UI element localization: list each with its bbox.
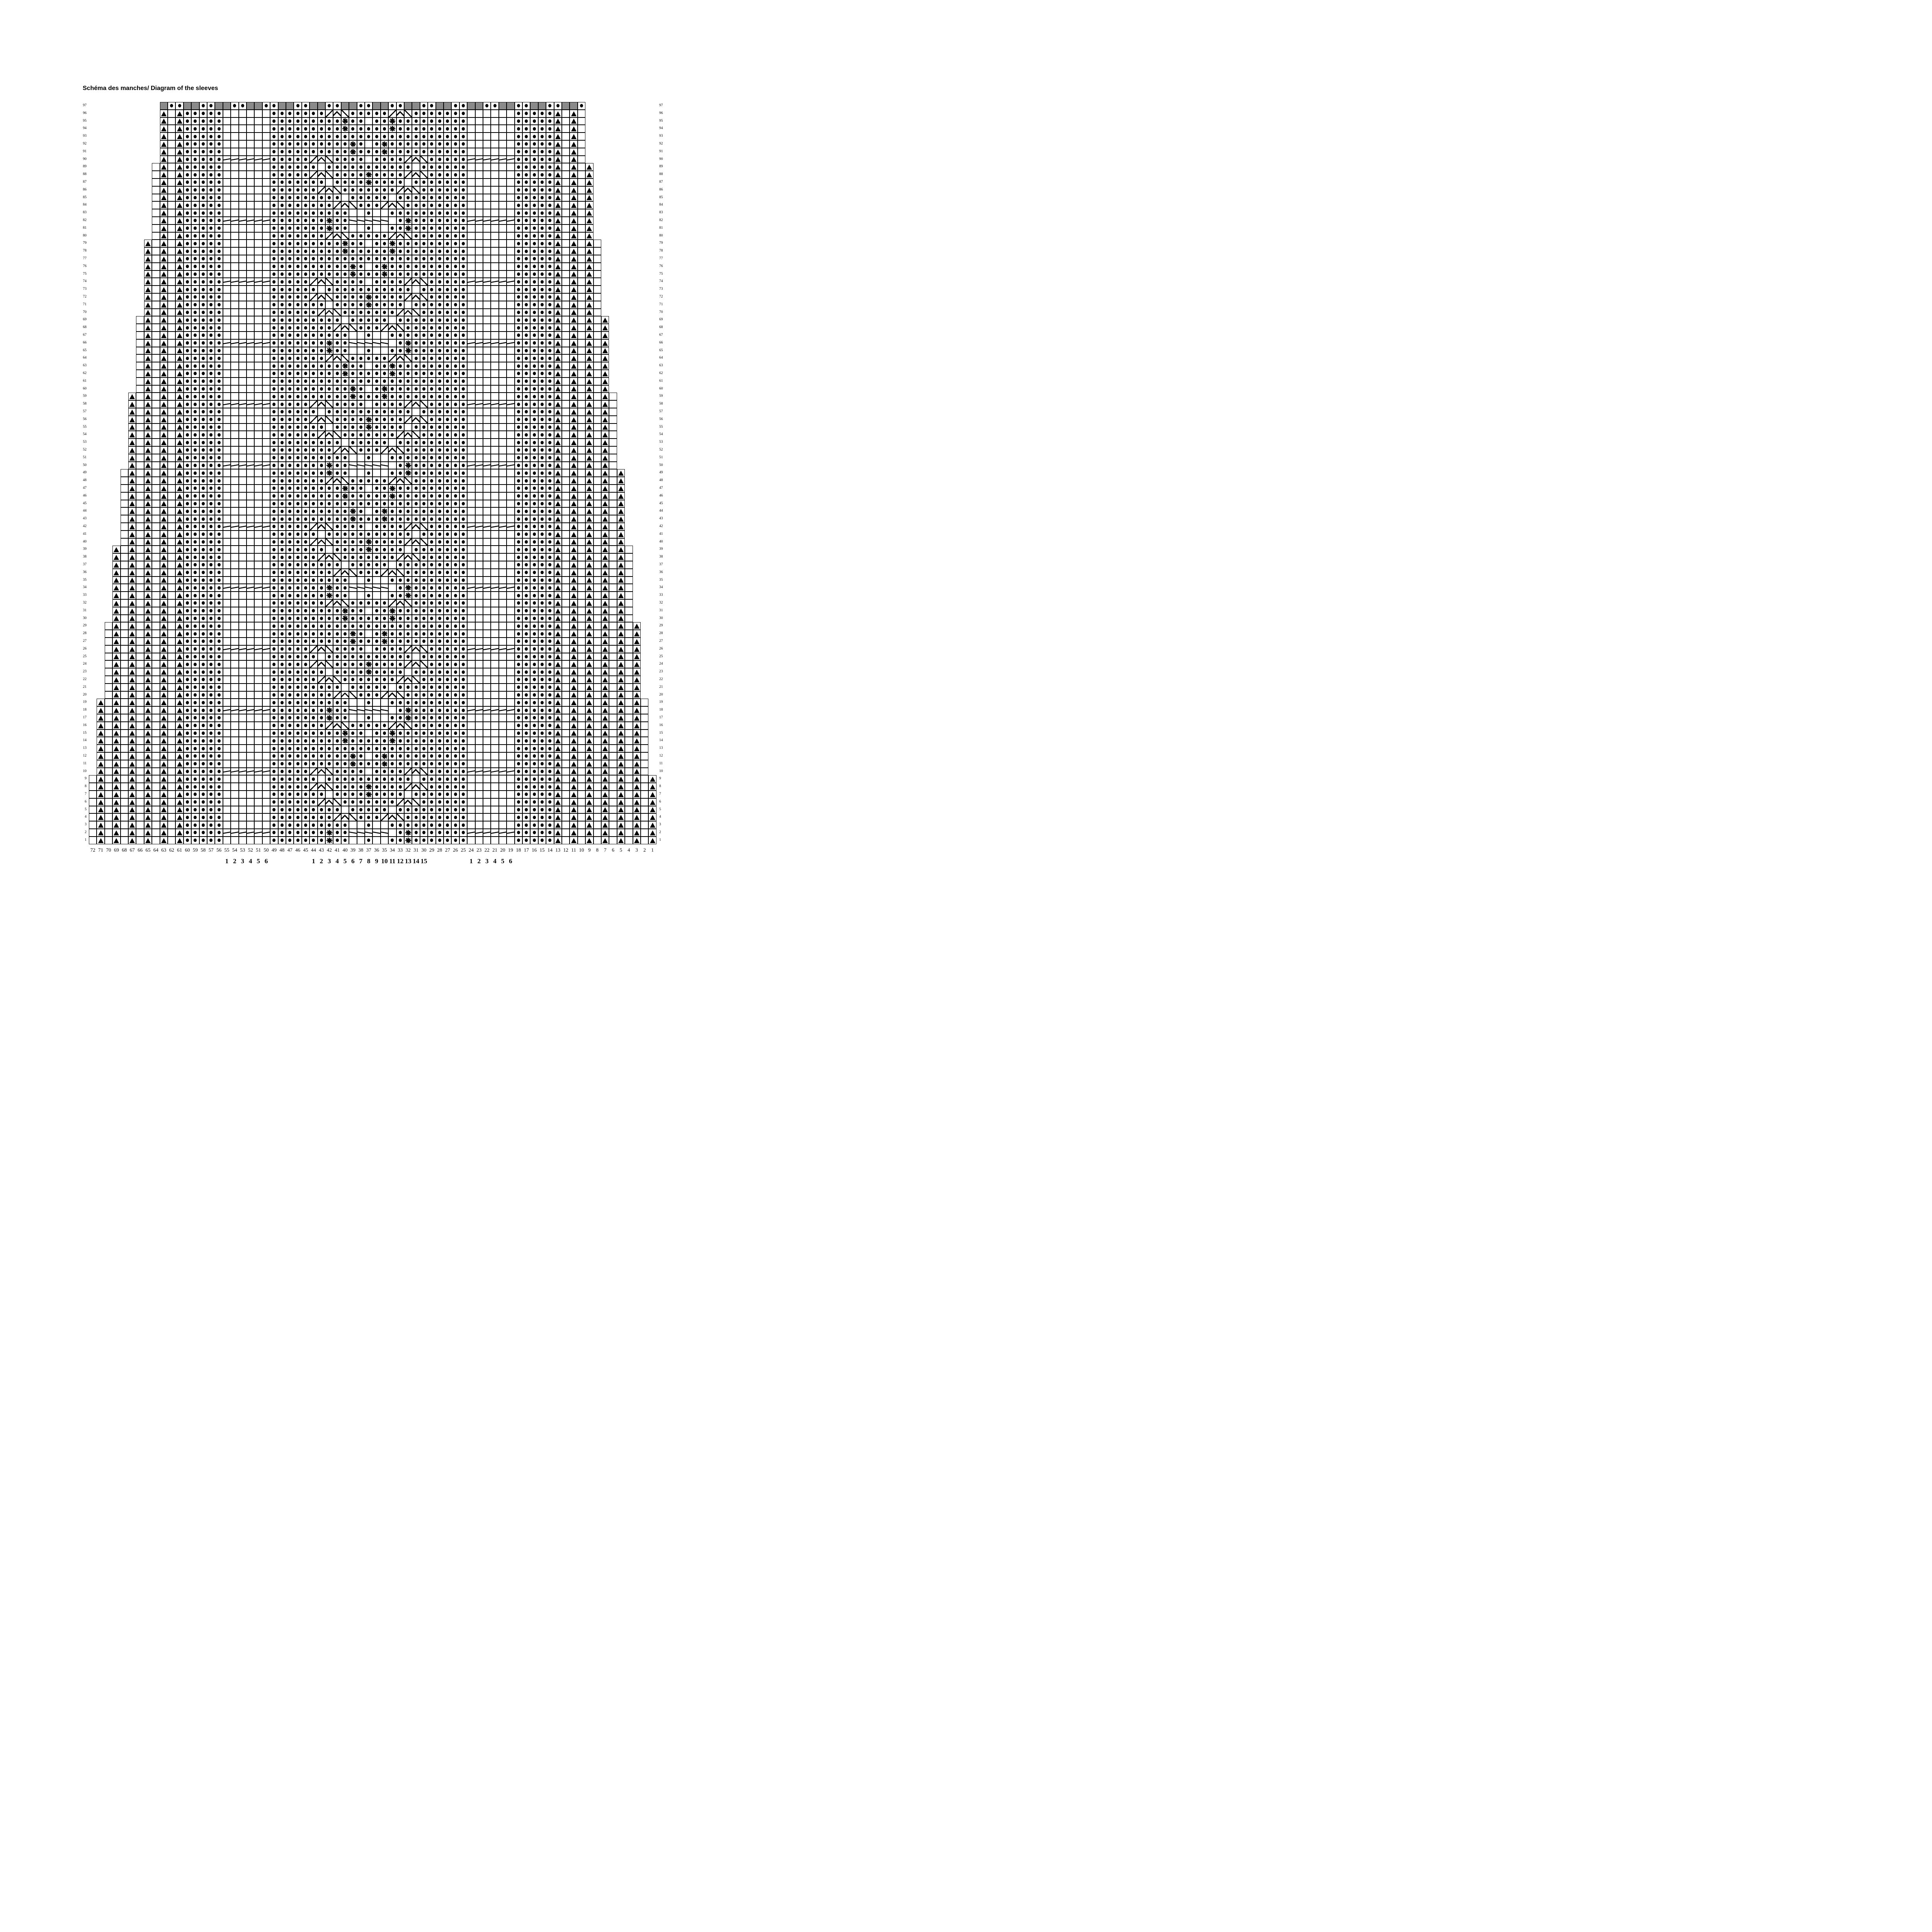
grid-cell: [302, 806, 310, 814]
grid-cell: [515, 676, 522, 684]
grid-cell: [396, 431, 404, 439]
grid-cell: [365, 347, 372, 355]
grid-cell: [294, 324, 301, 332]
grid-cell: [546, 293, 554, 301]
grid-cell: [617, 645, 625, 653]
grid-cell: [302, 630, 310, 638]
grid-cell: [388, 622, 396, 630]
grid-cell: [160, 638, 168, 645]
grid-cell: [412, 768, 420, 776]
grid-cell: [294, 714, 301, 722]
grid-cell: [372, 362, 380, 370]
grid-cell: [459, 378, 467, 385]
grid-cell: [381, 270, 388, 278]
grid-cell: [318, 577, 325, 584]
grid-cell: [341, 362, 349, 370]
grid-cell: [207, 699, 215, 706]
grid-cell: [420, 745, 428, 752]
grid-cell: [223, 385, 231, 393]
grid-cell: [625, 775, 633, 783]
grid-cell: [302, 278, 310, 286]
grid-cell: [294, 813, 301, 821]
grid-cell: [175, 339, 183, 347]
grid-cell: [318, 699, 325, 706]
grid-cell: [239, 400, 247, 408]
grid-cell: [349, 684, 357, 691]
grid-cell: [444, 385, 451, 393]
grid-cell: [562, 301, 570, 309]
grid-cell: [444, 837, 451, 844]
grid-cell: [160, 538, 168, 546]
grid-cell: [231, 813, 238, 821]
grid-cell: [459, 507, 467, 515]
grid-cell: [215, 507, 223, 515]
grid-cell: [491, 837, 498, 844]
grid-cell: [381, 638, 388, 645]
grid-cell: [459, 546, 467, 553]
grid-cell: [341, 813, 349, 821]
grid-cell: [270, 668, 278, 676]
grid-cell: [381, 309, 388, 316]
grid-cell: [546, 622, 554, 630]
grid-cell: [420, 523, 428, 531]
grid-cell: [515, 577, 522, 584]
grid-cell: [396, 347, 404, 355]
grid-cell: [578, 523, 585, 531]
grid-cell: [475, 577, 483, 584]
grid-cell: [530, 278, 538, 286]
grid-cell: [499, 584, 507, 592]
grid-cell: [215, 577, 223, 584]
grid-cell: [459, 385, 467, 393]
grid-cell: [515, 592, 522, 599]
grid-cell: [278, 760, 286, 768]
grid-cell: [112, 706, 120, 714]
grid-cell: [475, 783, 483, 791]
grid-cell: [475, 691, 483, 699]
grid-cell: [420, 730, 428, 737]
grid-cell: [294, 691, 301, 699]
grid-cell: [601, 439, 609, 446]
grid-cell: [396, 416, 404, 423]
grid-cell: [199, 607, 207, 615]
grid-cell: [483, 584, 491, 592]
grid-cell: [451, 561, 459, 569]
grid-cell: [302, 706, 310, 714]
grid-cell: [507, 362, 514, 370]
grid-cell: [341, 775, 349, 783]
grid-cell: [428, 485, 435, 492]
grid-cell: [609, 446, 617, 454]
grid-cell: [483, 553, 491, 561]
grid-cell: [475, 653, 483, 661]
grid-cell: [341, 783, 349, 791]
grid-cell: [325, 691, 333, 699]
grid-cell: [585, 393, 593, 400]
grid-cell: [294, 263, 301, 270]
grid-cell: [515, 255, 522, 263]
grid-cell: [530, 569, 538, 577]
grid-cell: [475, 278, 483, 286]
grid-cell: [278, 515, 286, 523]
grid-cell: [601, 492, 609, 500]
grid-cell: [270, 531, 278, 538]
grid-cell: [499, 278, 507, 286]
grid-cell: [451, 316, 459, 324]
grid-cell: [318, 706, 325, 714]
grid-cell: [428, 599, 435, 607]
grid-cell: [349, 378, 357, 385]
grid-cell: [191, 270, 199, 278]
grid-cell: [160, 531, 168, 538]
grid-cell: [112, 768, 120, 776]
grid-cell: [191, 263, 199, 270]
grid-cell: [562, 668, 570, 676]
grid-cell: [491, 408, 498, 416]
grid-cell: [396, 316, 404, 324]
grid-cell: [404, 577, 412, 584]
grid-cell: [294, 668, 301, 676]
grid-cell: [349, 730, 357, 737]
grid-cell: [349, 354, 357, 362]
grid-cell: [609, 630, 617, 638]
grid-cell: [294, 293, 301, 301]
grid-cell: [451, 829, 459, 837]
grid-cell: [112, 806, 120, 814]
grid-cell: [286, 722, 294, 730]
grid-cell: [136, 783, 144, 791]
grid-cell: [144, 500, 152, 508]
grid-cell: [601, 599, 609, 607]
grid-cell: [89, 806, 97, 814]
grid-cell: [459, 821, 467, 829]
grid-cell: [522, 515, 530, 523]
grid-cell: [554, 469, 562, 477]
grid-cell: [262, 538, 270, 546]
grid-cell: [594, 492, 601, 500]
grid-cell: [459, 584, 467, 592]
grid-cell: [451, 569, 459, 577]
grid-cell: [507, 722, 514, 730]
grid-cell: [372, 301, 380, 309]
grid-cell: [570, 286, 577, 293]
grid-cell: [310, 301, 317, 309]
grid-cell: [451, 813, 459, 821]
grid-cell: [365, 813, 372, 821]
grid-cell: [191, 400, 199, 408]
grid-cell: [609, 768, 617, 776]
grid-cell: [515, 515, 522, 523]
grid-cell: [475, 301, 483, 309]
grid-cell: [286, 263, 294, 270]
grid-cell: [562, 400, 570, 408]
grid-cell: [349, 638, 357, 645]
grid-cell: [522, 791, 530, 798]
grid-cell: [310, 569, 317, 577]
grid-cell: [562, 829, 570, 837]
grid-cell: [507, 760, 514, 768]
grid-cell: [420, 577, 428, 584]
grid-cell: [507, 339, 514, 347]
grid-cell: [594, 837, 601, 844]
grid-cell: [168, 339, 175, 347]
grid-cell: [381, 439, 388, 446]
grid-cell: [286, 278, 294, 286]
grid-cell: [585, 446, 593, 454]
grid-cell: [357, 423, 365, 431]
grid-cell: [475, 813, 483, 821]
grid-cell: [349, 469, 357, 477]
grid-cell: [262, 730, 270, 737]
grid-cell: [459, 607, 467, 615]
grid-cell: [349, 408, 357, 416]
grid-cell: [467, 752, 475, 760]
grid-cell: [388, 439, 396, 446]
grid-cell: [554, 354, 562, 362]
grid-cell: [507, 500, 514, 508]
grid-cell: [294, 507, 301, 515]
grid-cell: [585, 408, 593, 416]
grid-cell: [325, 515, 333, 523]
grid-cell: [412, 485, 420, 492]
grid-cell: [341, 837, 349, 844]
grid-cell: [625, 737, 633, 745]
grid-cell: [302, 599, 310, 607]
grid-cell: [365, 768, 372, 776]
grid-cell: [262, 332, 270, 339]
grid-cell: [310, 347, 317, 355]
grid-cell: [333, 730, 341, 737]
grid-cell: [294, 515, 301, 523]
grid-cell: [168, 324, 175, 332]
grid-cell: [341, 538, 349, 546]
grid-cell: [254, 286, 262, 293]
grid-cell: [270, 423, 278, 431]
grid-cell: [522, 439, 530, 446]
grid-cell: [617, 538, 625, 546]
grid-cell: [247, 515, 254, 523]
grid-cell: [459, 660, 467, 668]
grid-cell: [522, 370, 530, 378]
grid-cell: [247, 469, 254, 477]
grid-cell: [420, 270, 428, 278]
grid-cell: [594, 714, 601, 722]
grid-cell: [136, 400, 144, 408]
grid-cell: [538, 416, 546, 423]
grid-cell: [318, 837, 325, 844]
grid-cell: [254, 829, 262, 837]
grid-cell: [302, 714, 310, 722]
grid-cell: [404, 531, 412, 538]
grid-cell: [262, 278, 270, 286]
grid-cell: [601, 408, 609, 416]
grid-cell: [349, 278, 357, 286]
grid-cell: [381, 454, 388, 462]
grid-cell: [278, 775, 286, 783]
grid-cell: [530, 730, 538, 737]
grid-cell: [578, 354, 585, 362]
grid-cell: [215, 332, 223, 339]
grid-cell: [546, 599, 554, 607]
grid-cell: [270, 408, 278, 416]
grid-cell: [144, 745, 152, 752]
grid-cell: [89, 775, 97, 783]
grid-cell: [420, 263, 428, 270]
grid-cell: [585, 730, 593, 737]
grid-cell: [381, 477, 388, 485]
grid-cell: [428, 408, 435, 416]
grid-cell: [625, 699, 633, 706]
grid-cell: [585, 477, 593, 485]
grid-cell: [451, 255, 459, 263]
grid-cell: [633, 730, 641, 737]
grid-cell: [396, 837, 404, 844]
grid-cell: [648, 806, 656, 814]
grid-cell: [641, 798, 648, 806]
grid-cell: [483, 546, 491, 553]
grid-cell: [459, 768, 467, 776]
grid-cell: [444, 638, 451, 645]
grid-cell: [333, 309, 341, 316]
grid-cell: [601, 760, 609, 768]
grid-cell: [341, 507, 349, 515]
grid-cell: [184, 783, 191, 791]
grid-cell: [231, 737, 238, 745]
grid-cell: [507, 730, 514, 737]
grid-cell: [357, 829, 365, 837]
grid-cell: [570, 507, 577, 515]
grid-cell: [404, 752, 412, 760]
grid-cell: [538, 615, 546, 622]
grid-cell: [381, 339, 388, 347]
grid-cell: [325, 684, 333, 691]
grid-cell: [128, 431, 136, 439]
grid-cell: [278, 492, 286, 500]
grid-cell: [459, 332, 467, 339]
grid-cell: [254, 339, 262, 347]
grid-cell: [388, 599, 396, 607]
grid-cell: [522, 768, 530, 776]
grid-cell: [144, 676, 152, 684]
grid-cell: [105, 668, 112, 676]
grid-cell: [396, 645, 404, 653]
grid-cell: [191, 469, 199, 477]
grid-cell: [207, 768, 215, 776]
grid-cell: [459, 684, 467, 691]
grid-cell: [388, 362, 396, 370]
grid-cell: [546, 546, 554, 553]
grid-cell: [412, 592, 420, 599]
grid-cell: [349, 531, 357, 538]
grid-cell: [515, 745, 522, 752]
grid-cell: [467, 385, 475, 393]
grid-cell: [168, 515, 175, 523]
grid-cell: [381, 630, 388, 638]
grid-cell: [199, 653, 207, 661]
grid-cell: [262, 722, 270, 730]
grid-cell: [168, 722, 175, 730]
grid-cell: [325, 286, 333, 293]
grid-cell: [168, 354, 175, 362]
grid-cell: [286, 293, 294, 301]
grid-cell: [325, 798, 333, 806]
grid-cell: [254, 645, 262, 653]
grid-cell: [254, 730, 262, 737]
grid-cell: [136, 538, 144, 546]
grid-cell: [467, 454, 475, 462]
grid-cell: [617, 722, 625, 730]
grid-cell: [522, 416, 530, 423]
grid-cell: [451, 385, 459, 393]
grid-cell: [310, 829, 317, 837]
grid-cell: [428, 668, 435, 676]
grid-cell: [483, 477, 491, 485]
grid-cell: [294, 829, 301, 837]
grid-cell: [388, 737, 396, 745]
grid-cell: [562, 339, 570, 347]
grid-cell: [475, 462, 483, 469]
grid-cell: [538, 584, 546, 592]
grid-cell: [160, 469, 168, 477]
grid-cell: [254, 446, 262, 454]
grid-cell: [286, 577, 294, 584]
grid-cell: [388, 768, 396, 776]
grid-cell: [121, 676, 128, 684]
grid-cell: [515, 316, 522, 324]
grid-cell: [396, 737, 404, 745]
grid-cell: [491, 492, 498, 500]
grid-cell: [585, 515, 593, 523]
grid-cell: [530, 416, 538, 423]
grid-cell: [286, 775, 294, 783]
grid-cell: [175, 714, 183, 722]
grid-cell: [310, 553, 317, 561]
grid-cell: [396, 515, 404, 523]
grid-cell: [585, 760, 593, 768]
grid-cell: [609, 531, 617, 538]
grid-cell: [507, 439, 514, 446]
grid-cell: [436, 507, 444, 515]
grid-cell: [554, 676, 562, 684]
grid-cell: [365, 730, 372, 737]
grid-cell: [144, 531, 152, 538]
grid-cell: [420, 492, 428, 500]
grid-cell: [530, 684, 538, 691]
grid-cell: [522, 714, 530, 722]
grid-cell: [349, 768, 357, 776]
grid-cell: [144, 492, 152, 500]
grid-cell: [491, 752, 498, 760]
grid-cell: [191, 492, 199, 500]
grid-cell: [483, 408, 491, 416]
grid-cell: [247, 531, 254, 538]
grid-cell: [168, 286, 175, 293]
grid-cell: [475, 630, 483, 638]
grid-cell: [247, 791, 254, 798]
grid-cell: [475, 293, 483, 301]
grid-cell: [254, 309, 262, 316]
grid-cell: [530, 813, 538, 821]
grid-cell: [262, 301, 270, 309]
grid-cell: [396, 400, 404, 408]
grid-cell: [491, 439, 498, 446]
grid-cell: [372, 622, 380, 630]
grid-cell: [507, 553, 514, 561]
grid-cell: [318, 660, 325, 668]
grid-cell: [420, 584, 428, 592]
grid-cell: [633, 821, 641, 829]
grid-cell: [175, 454, 183, 462]
